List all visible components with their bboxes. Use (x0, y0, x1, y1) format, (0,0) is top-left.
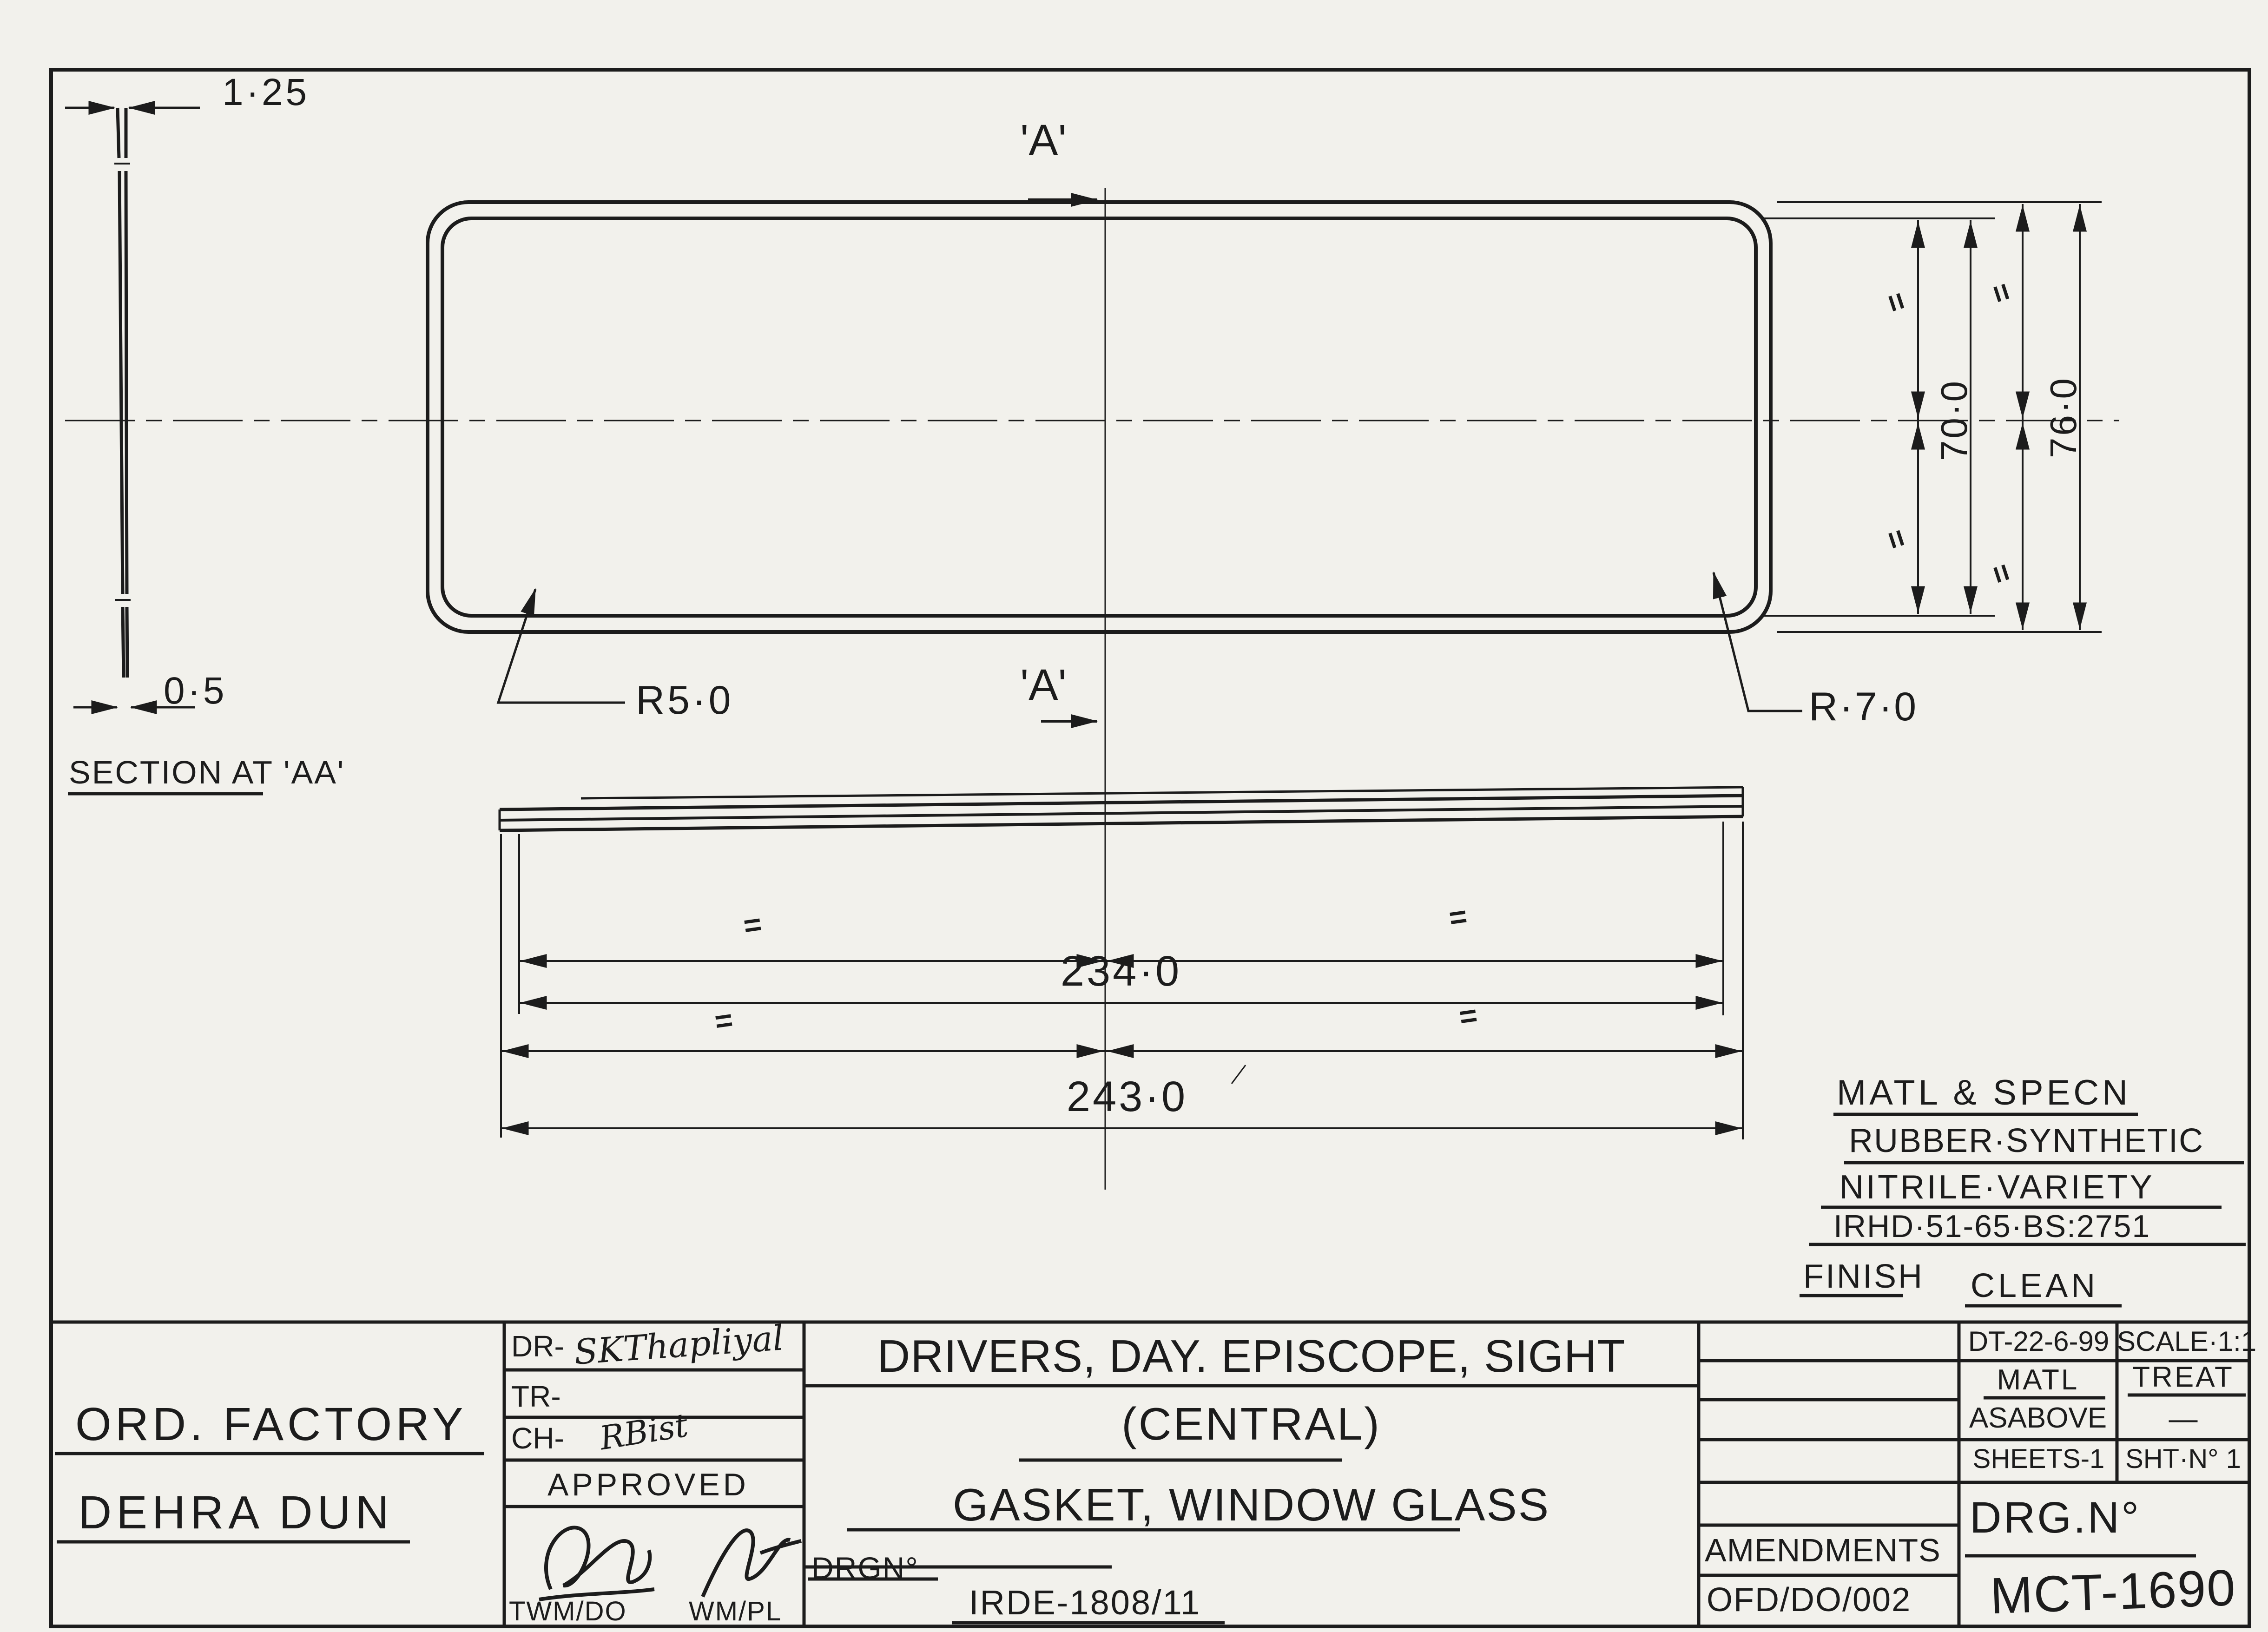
side-view-lines (500, 787, 1743, 830)
drawing-title-line3: GASKET, WINDOW GLASS (804, 1479, 1699, 1531)
sheet-no-field: SHT·N° 1 (2117, 1443, 2249, 1474)
factory-name-line1: ORD. FACTORY (75, 1398, 467, 1451)
treat-label: TREAT (2117, 1361, 2249, 1394)
signature-scribbles (539, 1527, 801, 1599)
dim-inner-width-label: 234·0 (1028, 947, 1214, 996)
treat-value: — (2117, 1402, 2249, 1435)
notes-line-3: IRHD·51-65·BS:2751 (1833, 1208, 2150, 1244)
radius-callout-right: R·7·0 (1809, 684, 1918, 730)
ch-label: CH- (511, 1421, 564, 1455)
factory-name-line2: DEHRA DUN (78, 1486, 394, 1540)
approver-left: TWM/DO (509, 1596, 627, 1627)
dim-outer-height-label: 76·0 (2042, 362, 2085, 473)
amendments-value: OFD/DO/002 (1707, 1581, 1911, 1619)
scale-field: SCALE·1:1 (2117, 1325, 2249, 1357)
drawing-linework (0, 0, 2268, 1632)
dim-outer-width-label: 243·0 (1034, 1073, 1220, 1121)
section-marker-bottom: 'A' (1004, 660, 1083, 711)
drg-no-value: MCT-1690 (1989, 1558, 2237, 1625)
radius-callout-left: R5·0 (636, 678, 733, 724)
section-marker-top: 'A' (1004, 115, 1083, 166)
approved-label: APPROVED (547, 1467, 749, 1503)
dim-inner-height-label: 70·0 (1933, 364, 1976, 476)
drg-value: IRDE-1808/11 (969, 1583, 1201, 1622)
sheets-field: SHEETS-1 (1960, 1443, 2117, 1474)
dr-label: DR- (511, 1329, 564, 1363)
drawing-sheet: 1·25 0·5 SECTION AT 'AA' 'A' 'A' R5·0 R·… (0, 0, 2268, 1632)
tr-label: TR- (511, 1379, 561, 1414)
sheet-border (51, 70, 2249, 1626)
section-dim-bottom-label: 0·5 (164, 669, 227, 713)
drg-label: DRGN° (811, 1550, 919, 1586)
approver-right: WM/PL (689, 1596, 782, 1627)
matl-value: ASABOVE (1959, 1402, 2117, 1435)
matl-label: MATL (1959, 1363, 2117, 1396)
notes-heading: MATL & SPECN (1837, 1073, 2131, 1113)
date-field: DT-22-6-99 (1960, 1325, 2117, 1357)
finish-label: FINISH (1803, 1257, 1924, 1296)
section-caption: SECTION AT 'AA' (69, 754, 345, 791)
finish-value: CLEAN (1971, 1267, 2098, 1305)
drawing-title-line2: (CENTRAL) (804, 1398, 1699, 1450)
drawing-title-line1: DRIVERS, DAY. EPISCOPE, SIGHT (804, 1330, 1699, 1382)
notes-line-2: NITRILE·VARIETY (1839, 1168, 2155, 1206)
section-dim-top-label: 1·25 (222, 71, 310, 114)
amendments-label: AMENDMENTS (1705, 1532, 1941, 1569)
drg-no-label: DRG.N° (1970, 1493, 2141, 1543)
notes-line-1: RUBBER·SYNTHETIC (1849, 1122, 2204, 1160)
